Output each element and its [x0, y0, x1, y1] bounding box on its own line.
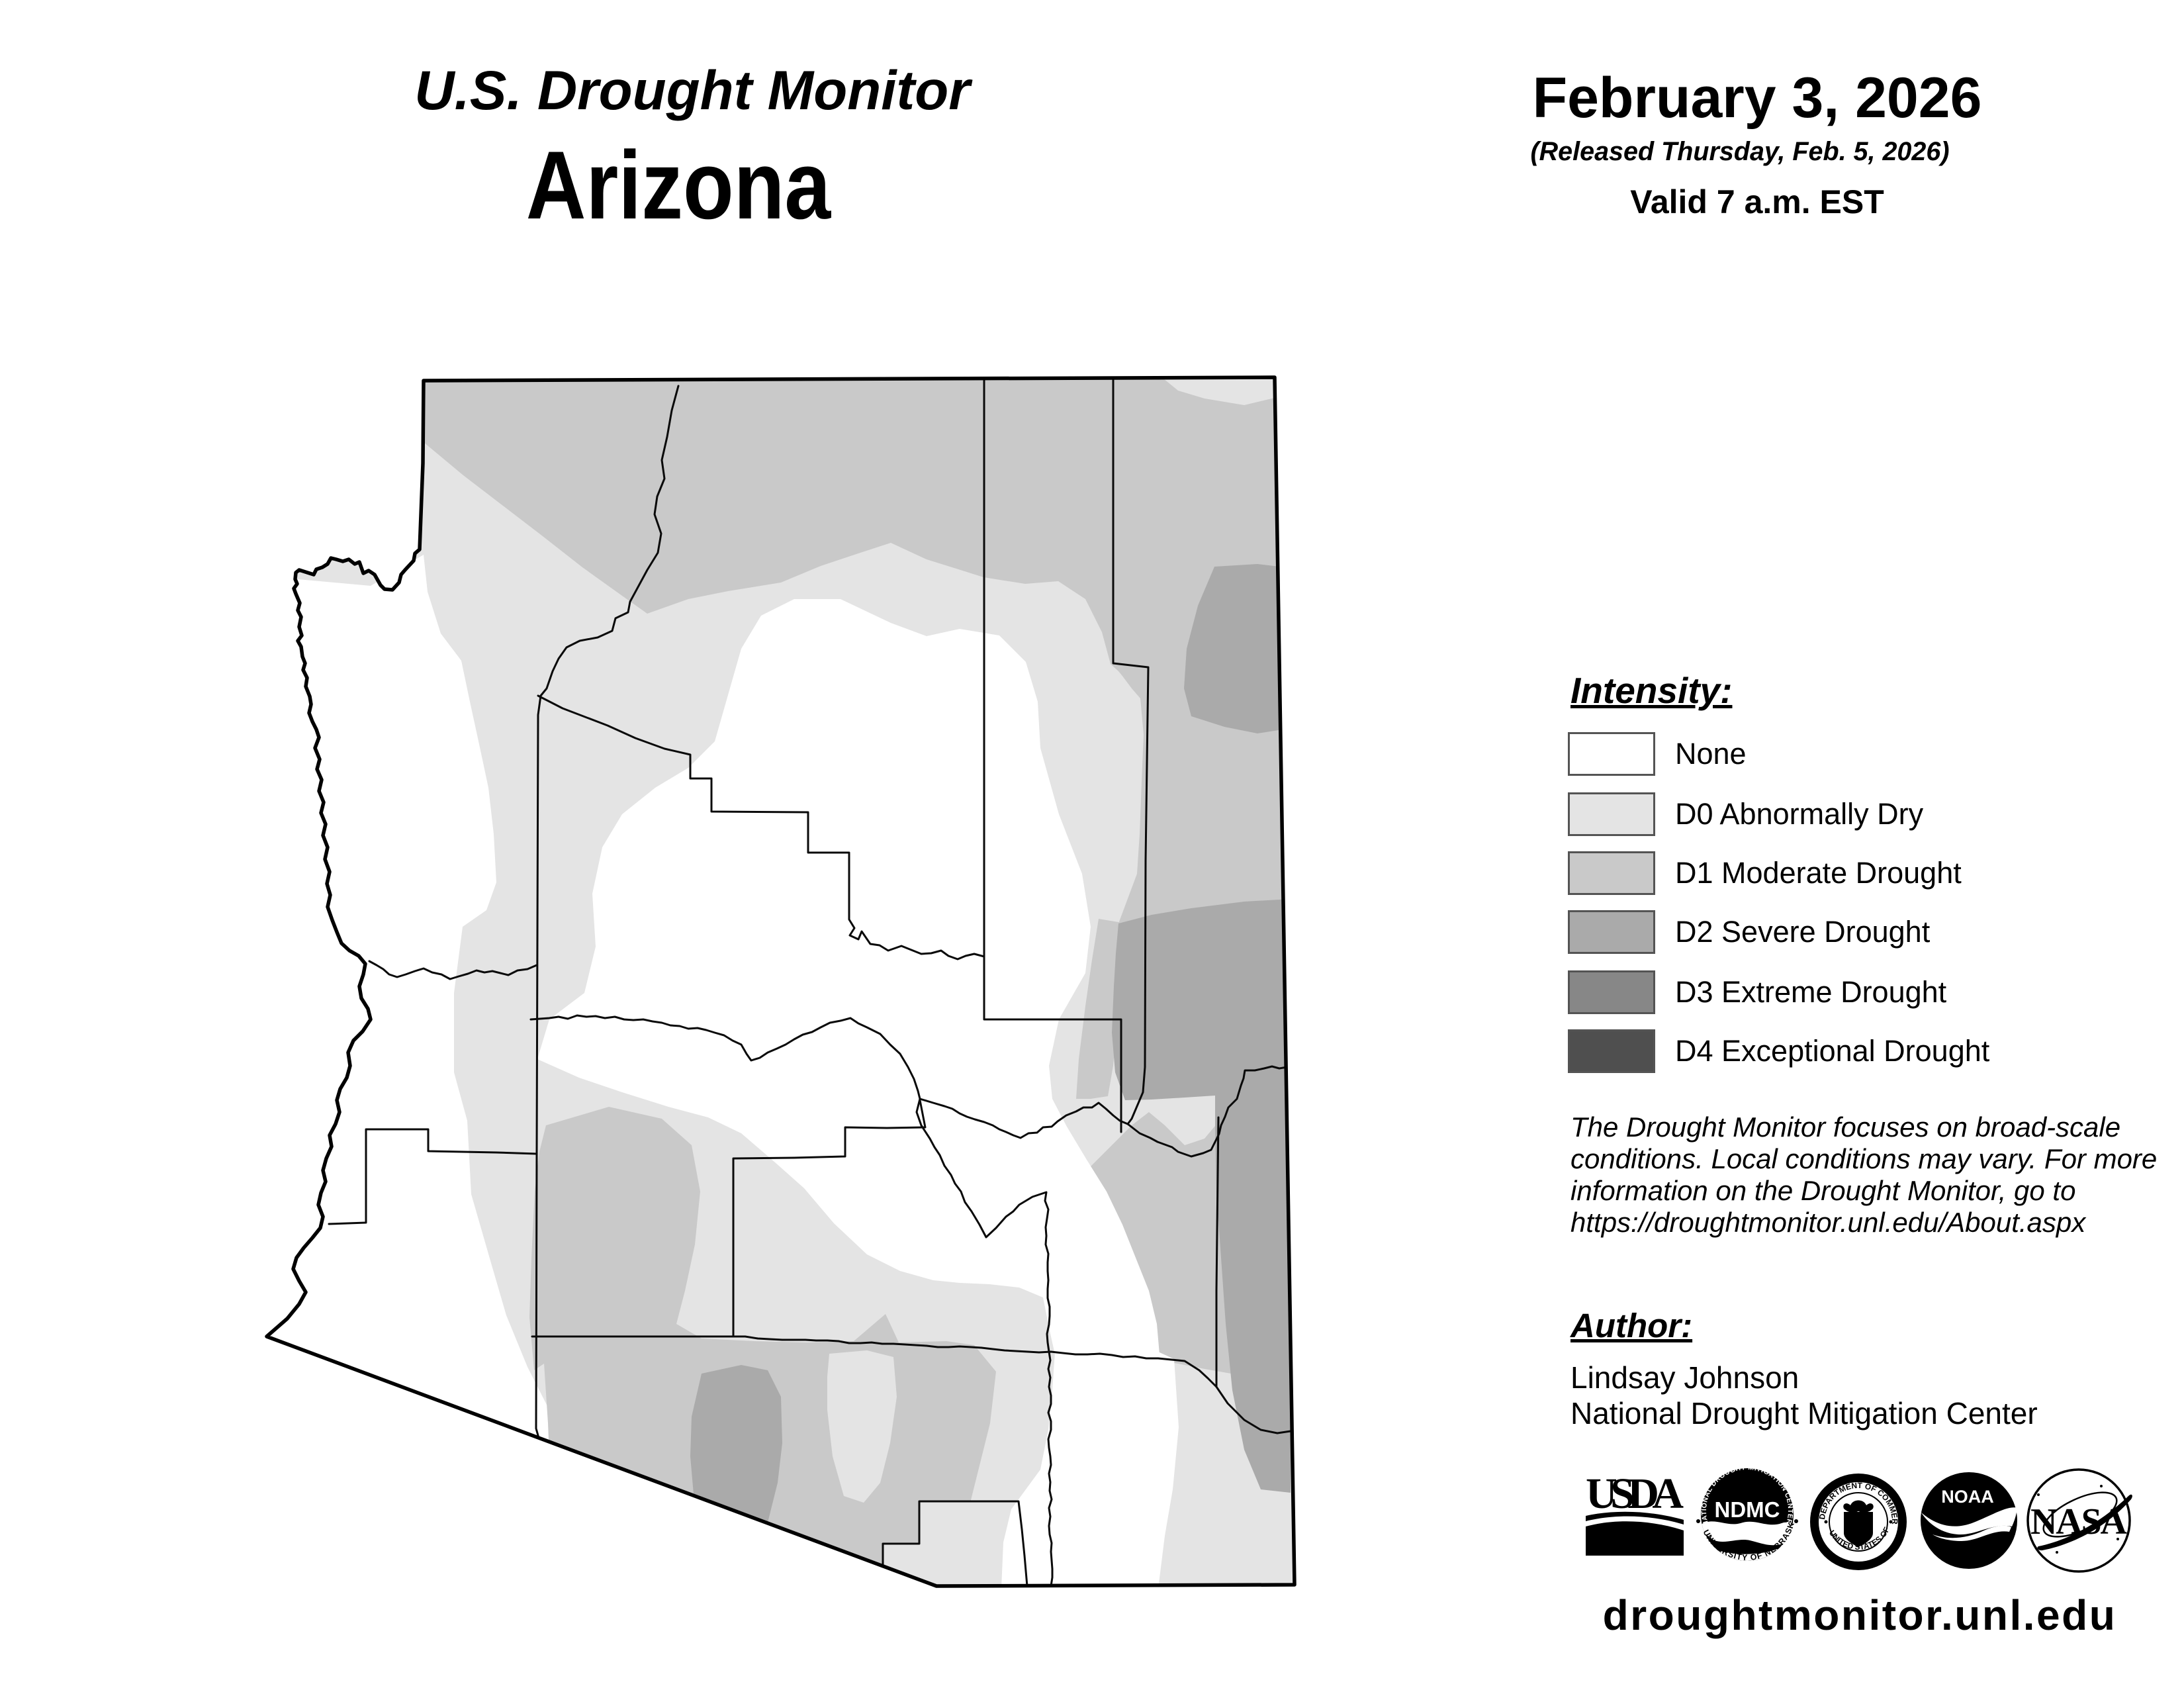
svg-text:NDMC: NDMC [1715, 1497, 1780, 1522]
svg-text:USDA: USDA [1586, 1470, 1684, 1518]
svg-text:NOAA: NOAA [1941, 1487, 1994, 1507]
